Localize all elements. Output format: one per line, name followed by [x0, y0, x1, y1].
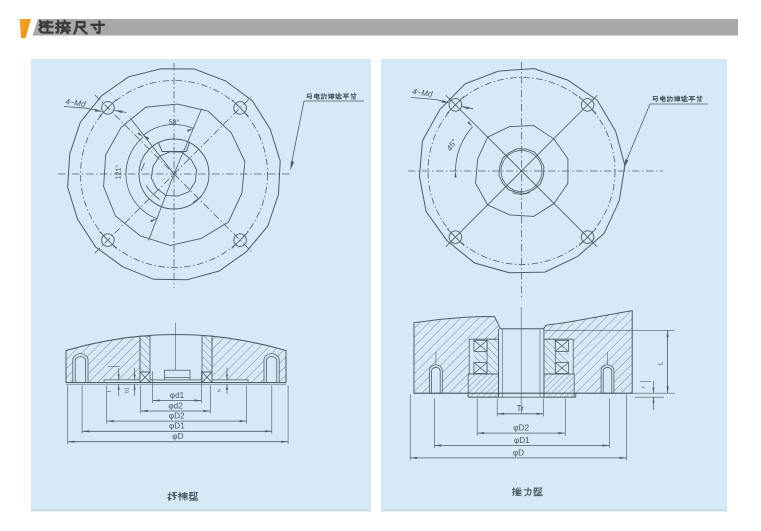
svg-text:φd2: φd2	[168, 401, 183, 410]
svg-text:b1: b1	[125, 387, 131, 393]
svg-text:φD: φD	[172, 432, 183, 441]
svg-text:121°: 121°	[115, 165, 123, 180]
svg-text:φD: φD	[513, 448, 524, 457]
svg-text:φd1: φd1	[170, 391, 185, 400]
svg-text:φD2: φD2	[513, 424, 529, 433]
svg-text:L: L	[658, 361, 665, 365]
svg-text:h: h	[217, 389, 223, 392]
svg-text:φD2: φD2	[169, 412, 185, 421]
svg-text:φD1: φD1	[514, 436, 530, 445]
svg-text:φD1: φD1	[169, 422, 185, 431]
svg-text:58°: 58°	[169, 119, 180, 127]
svg-text:Tr: Tr	[516, 404, 524, 413]
